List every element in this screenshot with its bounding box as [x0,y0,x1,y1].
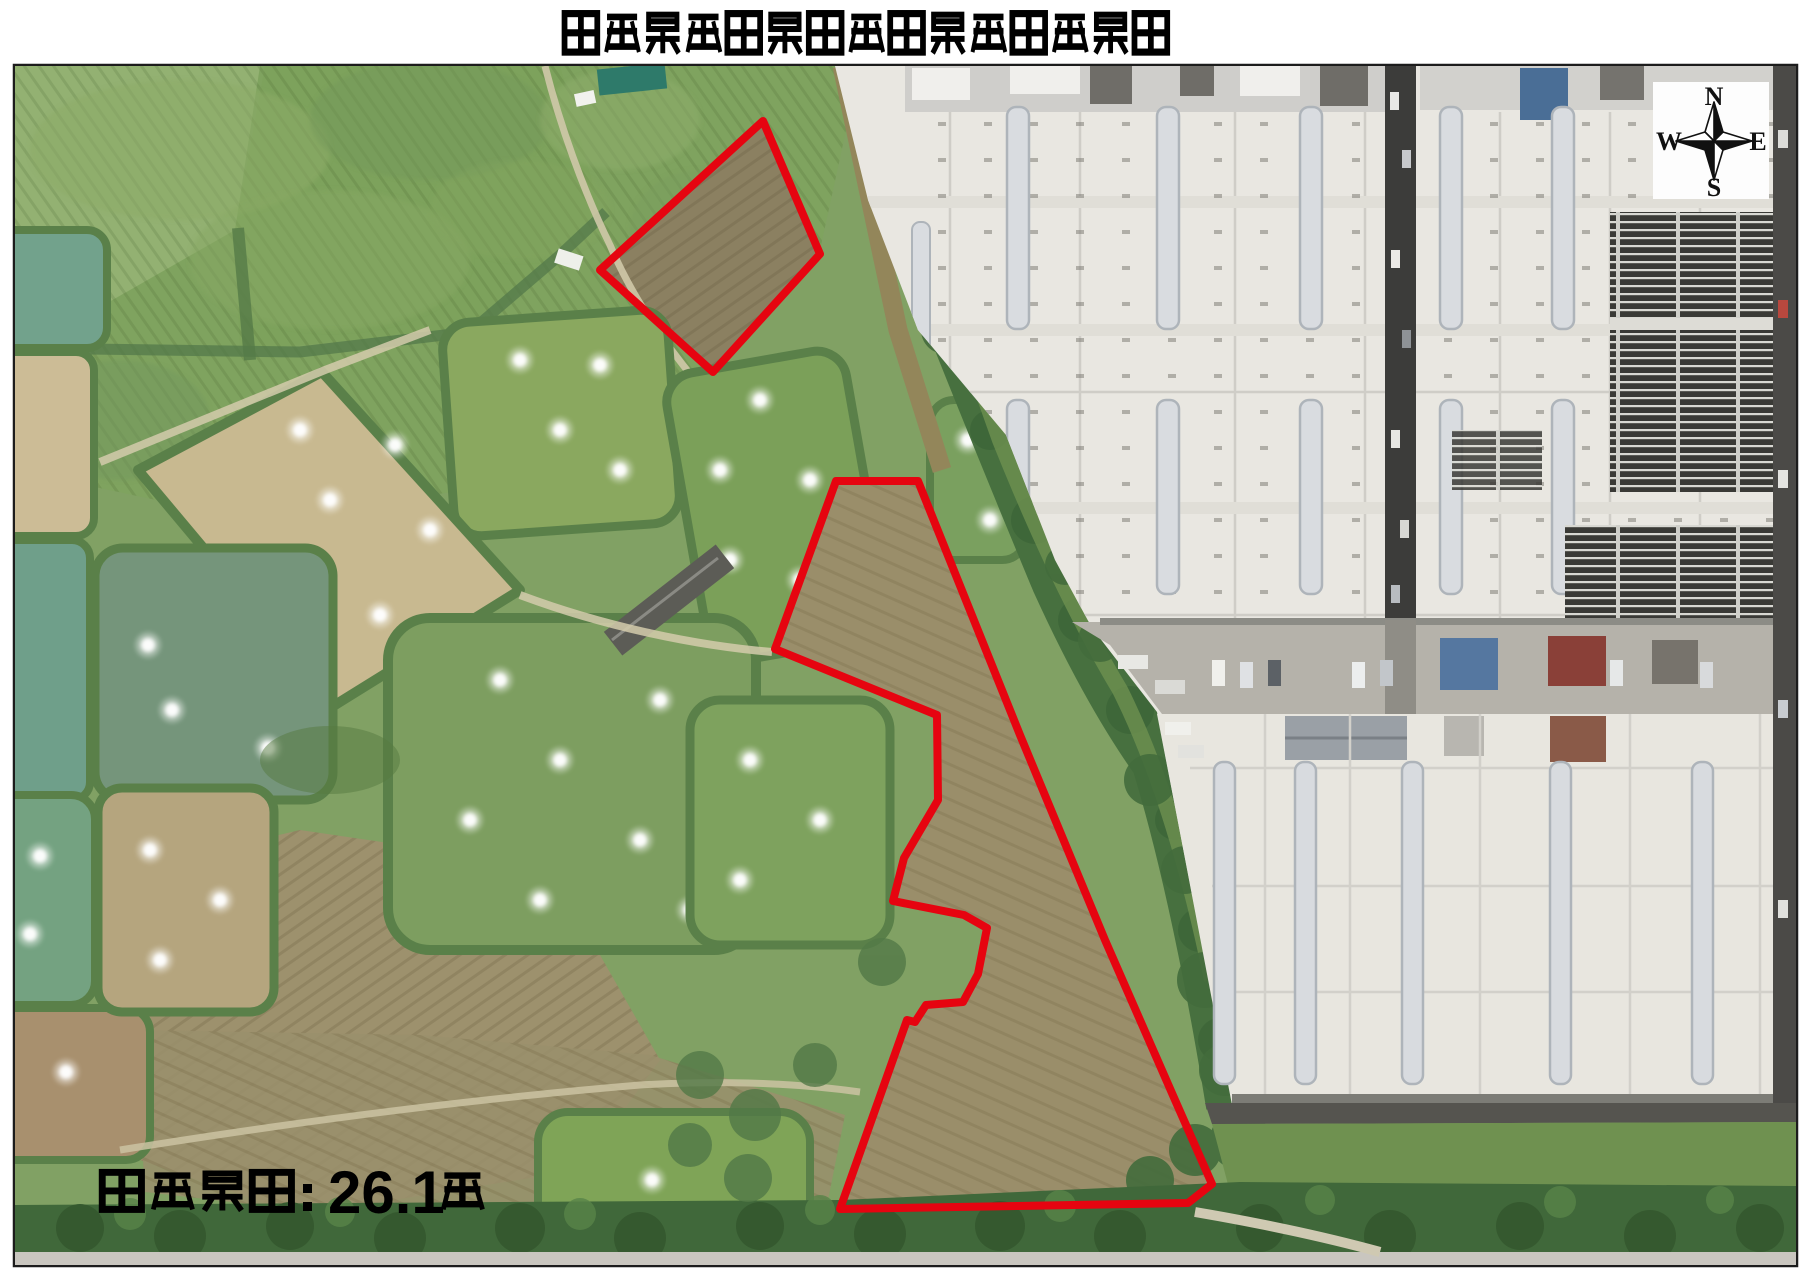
svg-text:W: W [1656,127,1682,156]
svg-text:S: S [1707,173,1721,202]
svg-text:26.1: 26.1 [328,1159,445,1226]
svg-text:N: N [1705,82,1724,111]
svg-text:E: E [1749,127,1766,156]
